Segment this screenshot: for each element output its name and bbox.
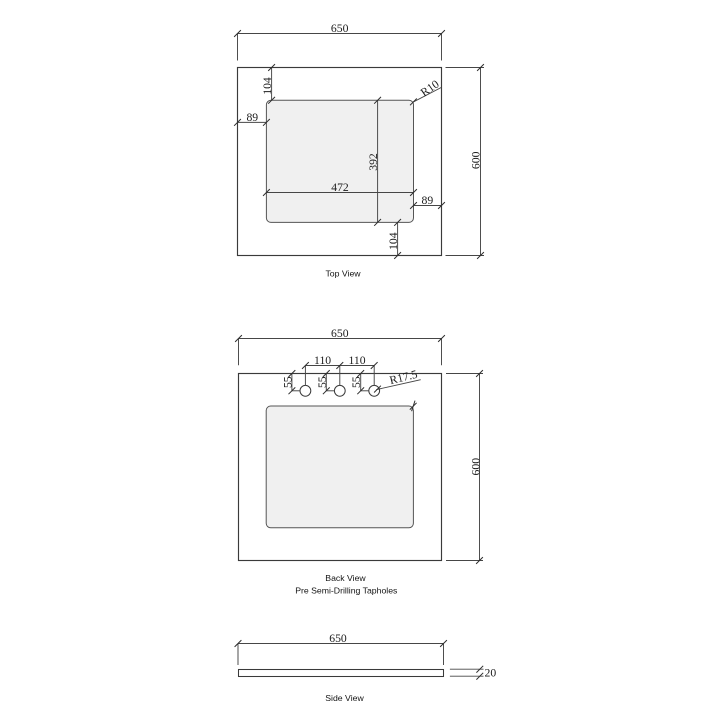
svg-text:Side View: Side View [325, 693, 364, 703]
svg-text:55: 55 [316, 376, 329, 388]
svg-text:55: 55 [350, 376, 363, 388]
svg-text:472: 472 [331, 181, 349, 194]
svg-text:R17.5: R17.5 [388, 368, 419, 387]
svg-text:650: 650 [329, 632, 347, 645]
svg-text:104: 104 [387, 232, 400, 250]
svg-text:20: 20 [485, 667, 497, 680]
svg-text:110: 110 [314, 354, 331, 367]
svg-text:392: 392 [367, 153, 380, 171]
svg-text:89: 89 [246, 111, 258, 124]
svg-text:Top View: Top View [325, 269, 361, 279]
svg-text:600: 600 [469, 458, 482, 476]
svg-text:600: 600 [469, 151, 482, 169]
svg-text:Pre Semi-Drilling Tapholes: Pre Semi-Drilling Tapholes [295, 586, 398, 596]
svg-text:110: 110 [348, 354, 365, 367]
svg-text:55: 55 [281, 376, 294, 388]
svg-text:89: 89 [422, 194, 434, 207]
svg-text:R10: R10 [418, 77, 442, 99]
svg-text:650: 650 [331, 22, 349, 35]
svg-text:Back View: Back View [325, 573, 366, 583]
svg-text:650: 650 [331, 327, 349, 340]
svg-text:104: 104 [261, 77, 274, 95]
